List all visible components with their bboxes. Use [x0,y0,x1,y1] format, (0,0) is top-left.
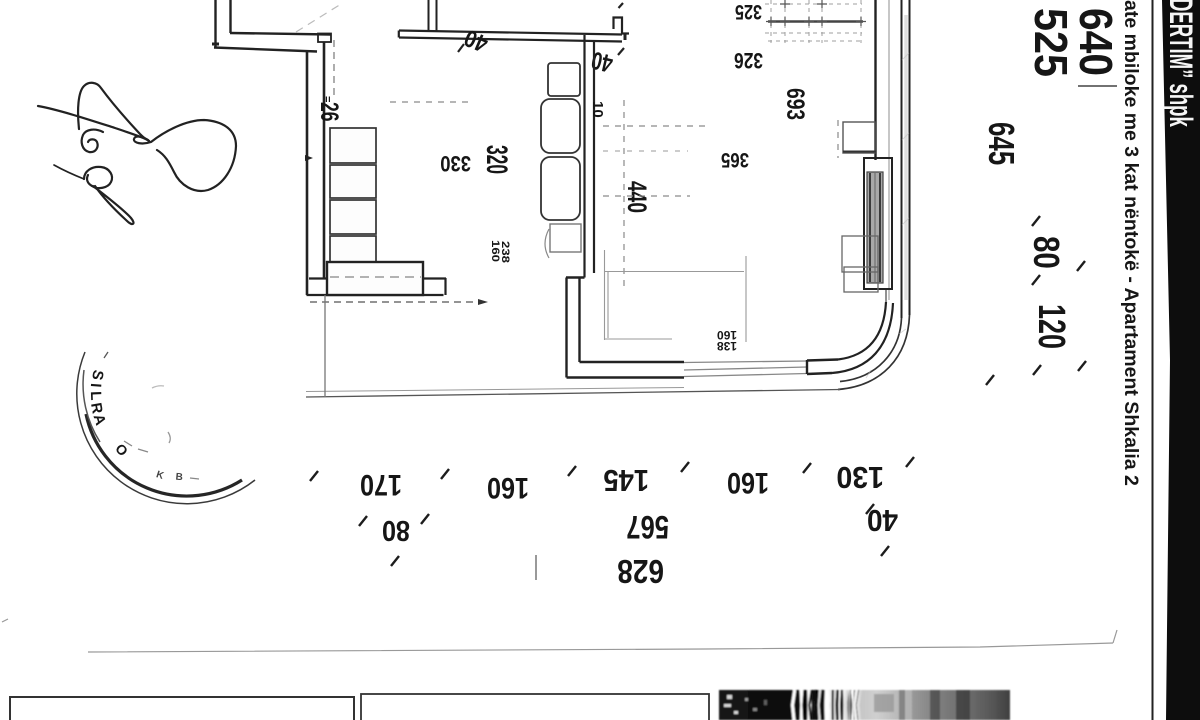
svg-text:325: 325 [735,1,762,25]
svg-text:B: B [175,472,183,484]
svg-text:326: 326 [734,47,763,71]
svg-text:80: 80 [382,515,410,548]
svg-text:238: 238 [499,241,512,263]
svg-text:40: 40 [589,46,616,78]
svg-text:693: 693 [781,88,809,120]
svg-text:440: 440 [622,181,652,213]
svg-text:567: 567 [626,508,669,543]
svg-text:130: 130 [836,460,884,494]
svg-text:145: 145 [603,463,649,497]
svg-text:DERTIM” shpk: DERTIM” shpk [1163,0,1200,127]
svg-text:160: 160 [487,472,529,506]
svg-text:138: 138 [717,339,737,353]
svg-text:K: K [155,469,166,482]
svg-text:640: 640 [1069,8,1120,76]
svg-text:26: 26 [315,102,344,121]
svg-text:320: 320 [480,145,513,174]
svg-text:10: 10 [589,101,606,118]
svg-text:365: 365 [721,147,749,170]
svg-text:I: I [87,383,104,388]
svg-text:170: 170 [360,469,402,503]
svg-text:645: 645 [981,122,1021,165]
svg-text:40: 40 [460,24,491,58]
svg-text:L: L [87,391,104,401]
svg-text:160: 160 [727,467,769,501]
svg-text:628: 628 [617,552,664,589]
svg-text:ate mbiloke me 3 kat nëntokë -: ate mbiloke me 3 kat nëntokë - Apartamen… [1120,0,1142,486]
svg-text:525: 525 [1024,8,1076,77]
svg-text:330: 330 [440,151,471,175]
svg-text:80: 80 [1026,236,1066,269]
svg-text:S: S [88,368,107,381]
svg-text:120: 120 [1031,304,1074,349]
